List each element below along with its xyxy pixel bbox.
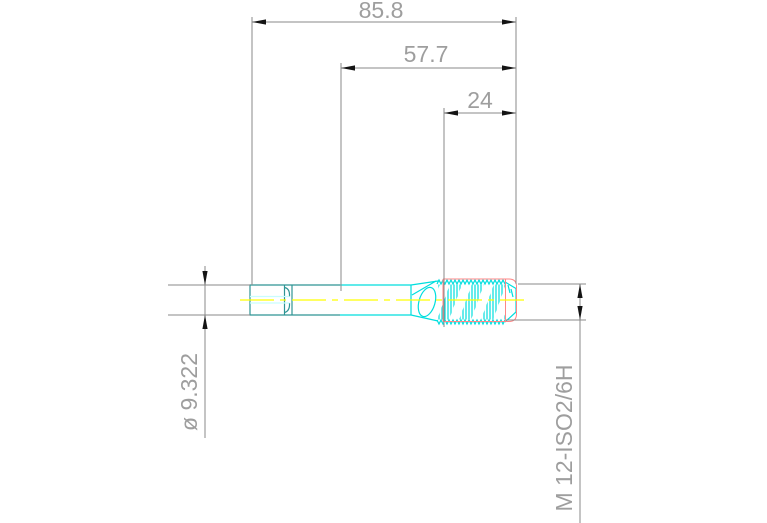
square-fillet-arc-top <box>285 288 290 297</box>
arrowhead-right <box>502 110 516 115</box>
square-fillet-arc-bottom <box>285 303 290 313</box>
arrowhead-left <box>444 110 458 115</box>
dimension-label: ø 9.322 <box>176 353 202 431</box>
arrowhead-right <box>502 65 516 70</box>
arrowhead-bottom <box>577 306 582 320</box>
dimension-label: M 12-ISO2/6H <box>551 365 577 512</box>
hatch-band <box>437 284 462 320</box>
dimension-label: 85.8 <box>359 0 404 23</box>
part-view <box>240 279 528 324</box>
thread-runout-ellipse <box>415 285 439 318</box>
arrowhead-top <box>202 271 207 285</box>
dimension-thread-spec: M 12-ISO2/6H <box>506 284 586 523</box>
dimension-overall-length: 85.8 <box>252 0 516 285</box>
arrowhead-top <box>577 284 582 298</box>
cone-bottom-edge <box>411 315 438 321</box>
chamfer-hatch-stroke <box>511 289 513 297</box>
arrowhead-left <box>252 19 266 24</box>
hatch-band <box>481 284 506 320</box>
arrowhead-bottom <box>202 315 207 329</box>
chamfer-top-edge <box>505 282 516 289</box>
thread-section <box>415 279 528 324</box>
dimension-label: 24 <box>467 87 493 113</box>
arrowhead-right <box>502 19 516 24</box>
chamfer-hatch-stroke <box>508 285 510 293</box>
chamfer-tip <box>505 282 516 322</box>
dimension-label: 57.7 <box>404 41 449 67</box>
hatch-band <box>459 284 484 320</box>
engineering-drawing-canvas: 85.8 57.7 24 ø 9.322 M 12-ISO2/6H <box>0 0 767 523</box>
arrowhead-left <box>341 65 355 70</box>
thread-crest-top <box>437 280 505 284</box>
dimension-front-length: 57.7 <box>341 41 516 291</box>
dimension-shank-diameter: ø 9.322 <box>168 266 250 438</box>
shank-section <box>340 281 439 321</box>
